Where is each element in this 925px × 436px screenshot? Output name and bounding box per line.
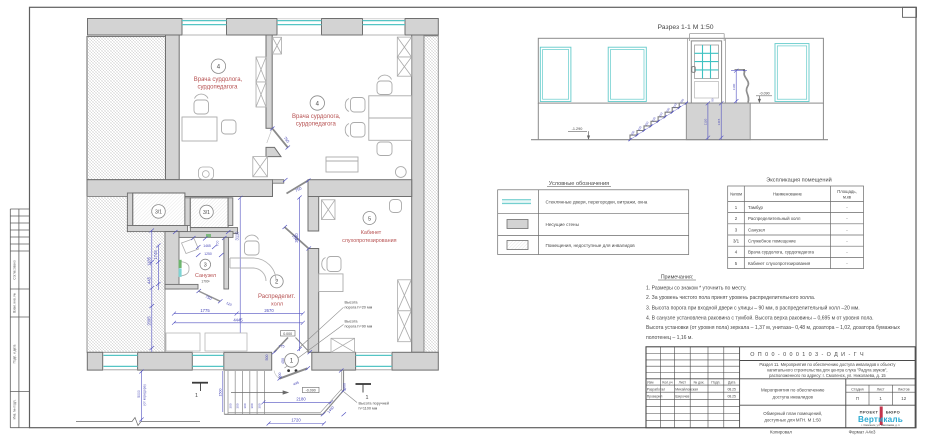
svg-text:Листов: Листов: [898, 388, 910, 392]
svg-text:1775: 1775: [200, 308, 210, 313]
svg-text:Тамбур: Тамбур: [748, 205, 763, 210]
svg-text:Лист: Лист: [679, 381, 687, 385]
svg-text:12: 12: [901, 396, 906, 401]
svg-text:-1.290: -1.290: [572, 127, 583, 131]
svg-text:445: 445: [146, 276, 151, 284]
svg-text:сурдопедагога: сурдопедагога: [197, 85, 238, 91]
svg-text:Врача сурдолога,: Врача сурдолога,: [292, 114, 341, 120]
svg-text:порога h=20 мм: порога h=20 мм: [345, 306, 373, 310]
svg-text:полотенец – 1,16 м.: полотенец – 1,16 м.: [646, 335, 693, 341]
svg-text:450: 450: [281, 358, 285, 364]
svg-text:Высота установки (от уровня по: Высота установки (от уровня пола) зеркал…: [646, 325, 900, 331]
svg-text:Согласовано: Согласовано: [13, 260, 17, 279]
svg-text:Подп. и дата: Подп. и дата: [13, 344, 17, 363]
svg-text:Подп.: Подп.: [711, 381, 720, 385]
svg-text:Лист: Лист: [877, 388, 885, 392]
svg-text:5: 5: [368, 216, 371, 222]
svg-text:Копировал: Копировал: [770, 429, 792, 434]
svg-text:г. Смоленск, ул. Николаева, д.: г. Смоленск, ул. Николаева, д. 1: [861, 423, 900, 427]
svg-text:Стадия: Стадия: [851, 388, 863, 392]
svg-text:3/1: 3/1: [155, 209, 162, 215]
svg-text:300: 300: [236, 403, 240, 408]
svg-text:П: П: [856, 396, 859, 401]
svg-text:Высота: Высота: [345, 320, 359, 324]
svg-text:м.кв: м.кв: [843, 195, 852, 200]
svg-text:300: 300: [243, 403, 247, 408]
svg-text:3110: 3110: [235, 231, 240, 241]
svg-text:1415: 1415: [717, 118, 721, 125]
svg-text:(от коридора): (от коридора): [143, 384, 147, 405]
svg-text:775: 775: [279, 345, 285, 349]
svg-text:2095: 2095: [146, 316, 151, 326]
svg-text:Изм: Изм: [647, 381, 654, 385]
svg-text:-0.090: -0.090: [306, 389, 316, 393]
svg-text:Обмерный план помещений,: Обмерный план помещений,: [763, 411, 822, 416]
svg-text:1745: 1745: [153, 250, 158, 260]
svg-text:Формат А4х3: Формат А4х3: [849, 429, 876, 434]
svg-text:БЮРО: БЮРО: [886, 409, 900, 414]
svg-text:Экспликация помещений: Экспликация помещений: [766, 176, 831, 183]
svg-text:Михайловская: Михайловская: [675, 388, 698, 392]
svg-text:Санузел: Санузел: [748, 227, 766, 232]
svg-text:300: 300: [250, 403, 254, 408]
svg-text:Высота: Высота: [345, 301, 359, 305]
svg-text:1. Размеры со знаком * уточнит: 1. Размеры со знаком * уточнить по месту…: [646, 286, 747, 292]
svg-text:Вертикаль: Вертикаль: [858, 415, 903, 424]
svg-text:Распределительный холл: Распределительный холл: [748, 216, 801, 221]
svg-text:холл: холл: [271, 302, 283, 308]
svg-text:Несущие стены: Несущие стены: [546, 222, 579, 227]
svg-text:1: 1: [195, 393, 198, 399]
svg-text:Распределит.: Распределит.: [258, 294, 296, 300]
svg-text:Примечания:: Примечания:: [661, 275, 694, 281]
svg-text:1465: 1465: [203, 244, 211, 248]
svg-text:1: 1: [366, 395, 369, 401]
svg-text:Кол.уч: Кол.уч: [662, 381, 672, 385]
svg-text:1250: 1250: [204, 252, 212, 256]
svg-text:№ док.: № док.: [694, 381, 705, 385]
svg-text:Стеклянные двери, перегородки,: Стеклянные двери, перегородки, витражи, …: [546, 200, 648, 205]
svg-text:1: 1: [290, 358, 294, 365]
svg-text:Служебное помещение: Служебное помещение: [748, 239, 797, 244]
svg-text:Разработал: Разработал: [647, 388, 665, 392]
svg-text:капитального строительства для: капитального строительства для центра сл…: [767, 368, 887, 373]
svg-text:Раздел 11. Мероприятия по обес: Раздел 11. Мероприятия по обеспечению до…: [759, 362, 896, 367]
svg-text:расположенного по адресу: г. С: расположенного по адресу: г. Смоленск, у…: [769, 373, 886, 378]
svg-text:1500: 1500: [219, 389, 223, 397]
svg-text:Мероприятия по обеспечению: Мероприятия по обеспечению: [761, 388, 825, 393]
svg-text:h=1100 мм: h=1100 мм: [359, 406, 378, 410]
svg-text:Санузел: Санузел: [195, 273, 216, 279]
svg-text:4. В санузле установлена раков: 4. В санузле установлена раковина с тумб…: [646, 314, 874, 321]
svg-text:-0.090: -0.090: [759, 92, 769, 96]
svg-text:Кабинет слухопротезирования: Кабинет слухопротезирования: [748, 261, 811, 266]
svg-text:2180: 2180: [296, 396, 306, 401]
svg-text:Инв. № подл.: Инв. № подл.: [13, 399, 17, 419]
svg-text:слухопротезирования: слухопротезирования: [342, 238, 397, 244]
svg-text:08.25: 08.25: [727, 395, 736, 399]
svg-text:Наименование: Наименование: [773, 192, 803, 197]
svg-text:500: 500: [265, 355, 269, 361]
svg-text:доступа инвалидов: доступа инвалидов: [772, 394, 813, 399]
svg-text:Широчев: Широчев: [675, 395, 689, 399]
svg-text:5000: 5000: [137, 390, 141, 398]
svg-text:Взам. инв. №: Взам. инв. №: [13, 293, 17, 313]
svg-text:Площадь,: Площадь,: [837, 189, 856, 194]
svg-text:1720: 1720: [291, 417, 301, 422]
svg-text:3/1: 3/1: [733, 239, 740, 244]
svg-text:ПРОЕКТ: ПРОЕКТ: [860, 409, 879, 414]
svg-text:3/1: 3/1: [203, 210, 210, 216]
svg-text:1120: 1120: [704, 118, 708, 125]
svg-text:Кабинет: Кабинет: [361, 230, 382, 236]
svg-text:Врача сурдолога, сурдопедагога: Врача сурдолога, сурдопедагога: [748, 250, 815, 255]
svg-text:Условные обозначения: Условные обозначения: [549, 181, 609, 187]
svg-text:300: 300: [258, 403, 262, 408]
svg-text:2670: 2670: [264, 308, 274, 313]
svg-text:1100: 1100: [732, 83, 736, 90]
svg-text:Помещения, недоступные для инв: Помещения, недоступные для инвалидов: [546, 243, 636, 248]
svg-text:300: 300: [228, 403, 232, 408]
svg-text:порога h=90 мм: порога h=90 мм: [345, 325, 373, 329]
svg-text:0.000: 0.000: [283, 332, 292, 336]
svg-text:ОП00-000103-ОДИ-ГЧ: ОП00-000103-ОДИ-ГЧ: [750, 352, 867, 358]
svg-text:2. За уровень чистого пола при: 2. За уровень чистого пола принят уровен…: [646, 295, 815, 301]
svg-text:3. Высота порога при входной д: 3. Высота порога при входной двери с ули…: [646, 304, 860, 311]
svg-text:3: 3: [204, 262, 207, 268]
svg-text:Дата: Дата: [728, 381, 736, 385]
svg-text:08.25: 08.25: [727, 388, 736, 392]
svg-text:сурдопедагога: сурдопедагога: [296, 122, 337, 128]
svg-text:Врача сурдолога,: Врача сурдолога,: [194, 77, 243, 83]
svg-text:Высота поручней: Высота поручней: [359, 401, 390, 405]
svg-text:доступных для МГН. М 1:50: доступных для МГН. М 1:50: [764, 417, 821, 422]
svg-text:1700²: 1700²: [201, 279, 209, 283]
svg-text:900: 900: [278, 373, 282, 379]
svg-text:Проверил: Проверил: [647, 395, 663, 399]
svg-text:Разрез 1-1 М 1:50: Разрез 1-1 М 1:50: [657, 24, 713, 31]
svg-text:№пом: №пом: [730, 192, 742, 197]
svg-text:1185: 1185: [146, 256, 151, 266]
svg-text:4445: 4445: [233, 317, 243, 322]
svg-text:90: 90: [711, 98, 715, 102]
